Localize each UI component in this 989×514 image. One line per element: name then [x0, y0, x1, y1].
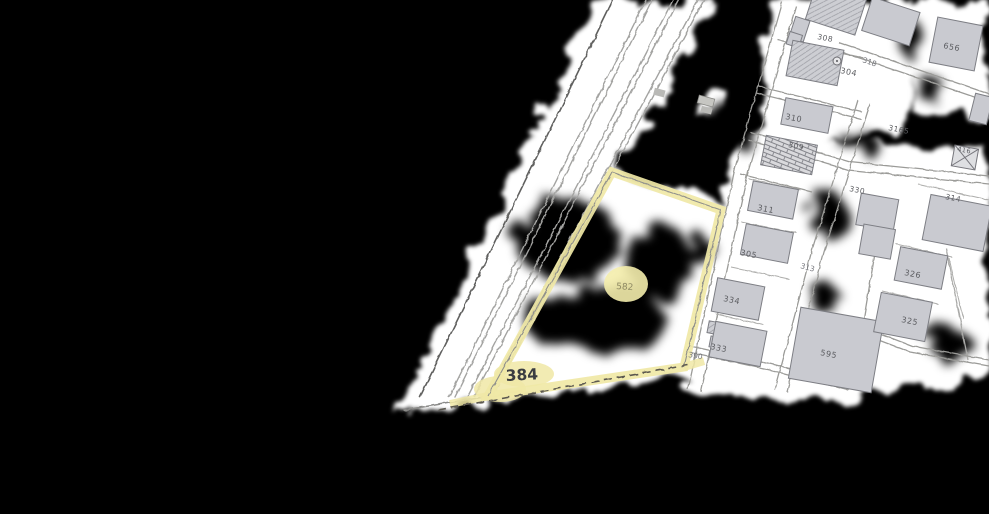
cadastral-map[interactable]: 384 582 390 310 309 304 308 656 311 305 … [0, 0, 989, 514]
parcel-582-label: 582 [616, 282, 634, 293]
parcel-384-label: 384 [505, 365, 538, 385]
well-symbol-dot [836, 60, 838, 62]
map-viewport[interactable]: 384 582 390 310 309 304 308 656 311 305 … [0, 0, 989, 514]
